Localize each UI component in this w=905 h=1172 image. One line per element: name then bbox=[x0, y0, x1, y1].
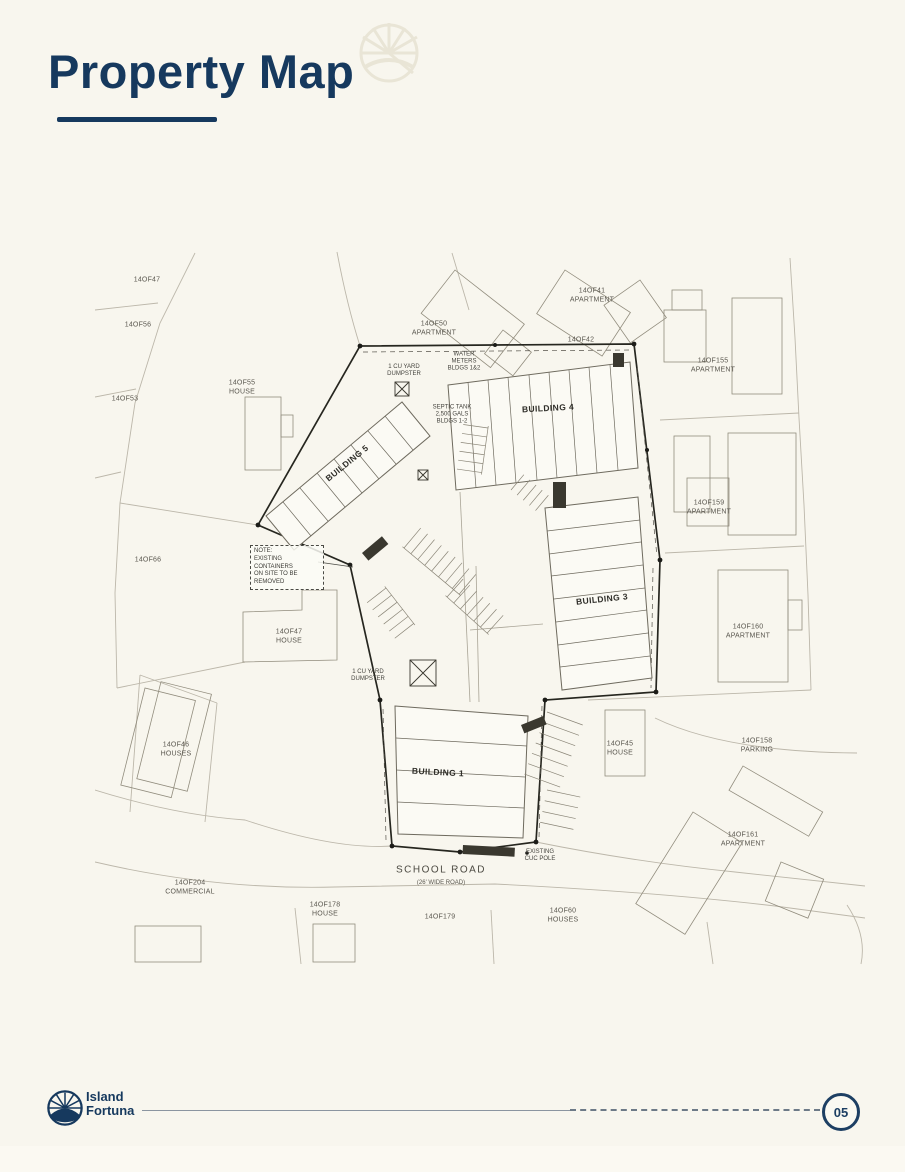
parcel-label: 14OF158 PARKING bbox=[741, 737, 773, 755]
parcel-label: 14OF50 APARTMENT bbox=[412, 320, 456, 338]
parcel-label: 14OF179 bbox=[425, 914, 456, 923]
driveway-lines bbox=[460, 492, 543, 702]
parcel-label: 14OF178 HOUSE bbox=[310, 901, 341, 919]
cuc-pole-note: EXISTING CUC POLE bbox=[525, 849, 556, 863]
dumpster-note: 1 CU YARD DUMPSTER bbox=[387, 364, 421, 378]
water-meters-note: WATER METERS BLDGS 1&2 bbox=[448, 352, 481, 373]
parcel-label: 14OF42 bbox=[568, 337, 595, 346]
parcel-label: 14OF47 HOUSE bbox=[276, 628, 303, 646]
parcel-label: 14OF204 COMMERCIAL bbox=[165, 879, 214, 897]
containers-note-box: NOTE: EXISTING CONTAINERS ON SITE TO BE … bbox=[250, 545, 324, 590]
document-page: Property Map bbox=[0, 0, 905, 1172]
parcel-label: 14OF53 bbox=[112, 396, 139, 405]
parcel-label: 14OF159 APARTMENT bbox=[687, 499, 731, 517]
parcel-label: 14OF45 HOUSE bbox=[607, 740, 634, 758]
footer-rule-dashed bbox=[570, 1109, 820, 1111]
school-road-label: SCHOOL ROAD bbox=[396, 865, 486, 876]
footer-rule-solid bbox=[142, 1110, 570, 1111]
sun-watermark-icon bbox=[345, 15, 430, 85]
septic-tank-note: SEPTIC TANK 2,500 GALS BLDGS 1-2 bbox=[433, 405, 472, 426]
bottom-strip bbox=[0, 1146, 905, 1172]
parcel-label: 14OF55 HOUSE bbox=[229, 379, 256, 397]
title-underline bbox=[57, 117, 217, 122]
page-number-badge: 05 bbox=[822, 1093, 860, 1131]
parcel-label: 14OF66 bbox=[135, 557, 162, 566]
parcel-label: 14OF47 bbox=[134, 277, 161, 286]
parcel-label: 14OF41 APARTMENT bbox=[570, 287, 614, 305]
island-fortuna-logo-icon bbox=[46, 1089, 84, 1127]
parcel-label: 14OF160 APARTMENT bbox=[726, 623, 770, 641]
school-road-width-label: (26' WIDE ROAD) bbox=[417, 880, 465, 886]
parcel-label: 14OF161 APARTMENT bbox=[721, 831, 765, 849]
dumpster-note: 1 CU YARD DUMPSTER bbox=[351, 669, 385, 683]
parcel-label: 14OF60 HOUSES bbox=[548, 907, 579, 925]
parcel-label: 14OF155 APARTMENT bbox=[691, 357, 735, 375]
brand-name: Island Fortuna bbox=[86, 1090, 134, 1117]
parcel-label: 14OF56 bbox=[125, 322, 152, 331]
page-title: Property Map bbox=[48, 44, 354, 99]
parcel-label: 14OF46 HOUSES bbox=[161, 741, 192, 759]
